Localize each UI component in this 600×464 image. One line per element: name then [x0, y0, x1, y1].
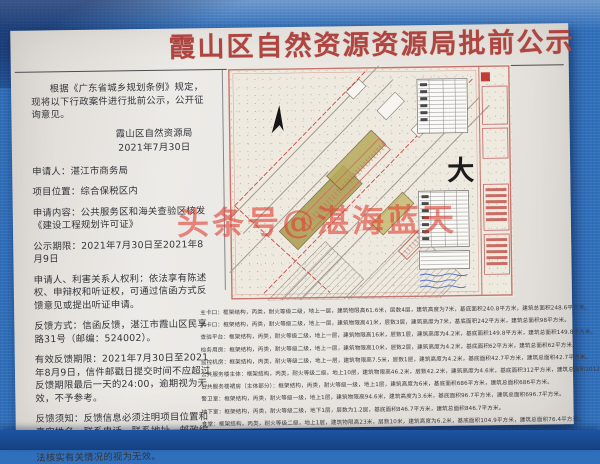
issue-date: 2021年7月30日: [118, 141, 190, 153]
plan-title-block-strip: [482, 86, 510, 274]
field-rights: 申请人、利害关系人权利：依法享有陈述权、申辩权和听证权，可通过信函方式反馈意见或…: [34, 271, 212, 312]
column-divider-line: [222, 70, 226, 290]
issuing-agency: 霞山区自然资源局: [116, 127, 193, 139]
north-arrow-icon: [271, 105, 283, 133]
field-feedback-method: 反馈方式：信函反馈，湛江市霞山区民享路31号（邮编：524002）。: [34, 317, 212, 345]
site-plan-drawing: 大: [227, 64, 514, 301]
building-specs-block: 主卡口：框架结构，丙类，耐火等级二级，地上一层，建筑物限高61.6米，层数4层，…: [200, 301, 576, 432]
notice-paper: 霞山区自然资源资源局批前公示 根据《广东省城乡规划条例》规定，现将以下行政案件进…: [10, 23, 574, 432]
notice-body: 根据《广东省城乡规划条例》规定，现将以下行政案件进行批前公示，公开征询意见。 霞…: [31, 80, 216, 428]
notice-title: 霞山区自然资源资源局批前公示: [168, 27, 508, 66]
field-location: 项目位置：综合保税区内: [32, 183, 210, 198]
red-stamp: [481, 72, 490, 81]
tarp-bottom-band: [0, 430, 600, 450]
field-feedback-deadline: 有效反馈期限：2021年7月30日至2021年8月9日，信件邮戳日提交时间不应超…: [35, 351, 214, 405]
intro-paragraph: 根据《广东省城乡规划条例》规定，现将以下行政案件进行批前公示，公开征询意见。: [31, 80, 209, 121]
field-publicity-period: 公示期限：2021年7月30日至2021年8月9日: [33, 237, 211, 265]
signature-block: 霞山区自然资源局 2021年7月30日: [32, 125, 210, 156]
map-large-character: 大: [447, 155, 474, 186]
plan-buildings: [278, 130, 415, 250]
field-applicant: 申请人：湛江市商务局: [32, 162, 210, 177]
field-content: 申请内容：公共服务区和海关查验区核发《建设工程规划许可证》: [33, 204, 211, 232]
